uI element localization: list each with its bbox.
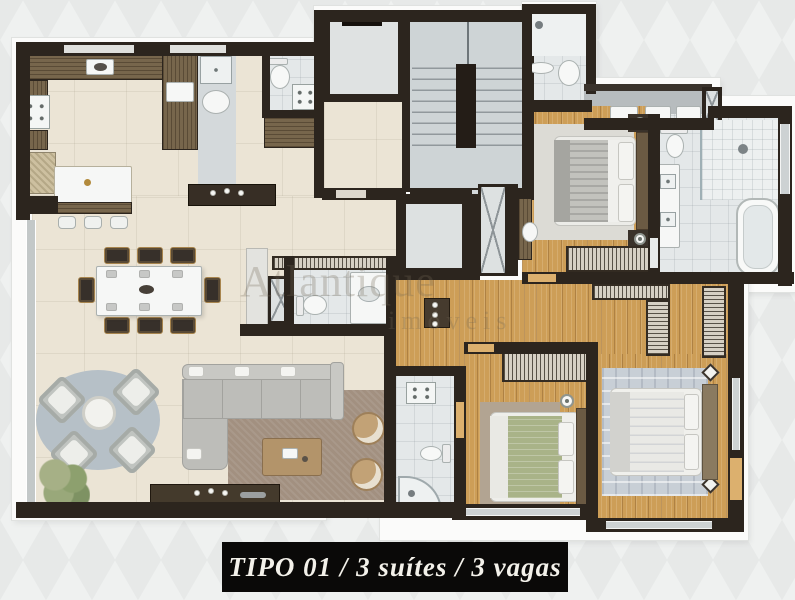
pillow <box>558 460 574 494</box>
wall <box>284 256 294 334</box>
powder-basin <box>358 286 380 302</box>
wall <box>454 366 466 516</box>
master-blanket-fold <box>554 140 570 222</box>
door-opening <box>468 344 494 352</box>
wall <box>262 50 270 116</box>
barrel-chair <box>352 412 385 445</box>
candle <box>222 490 228 496</box>
stair-divider <box>467 16 469 66</box>
sofa-seat <box>182 379 342 419</box>
bathtub <box>736 198 780 276</box>
decor-dot <box>210 190 216 196</box>
window <box>466 508 580 516</box>
vanity-sink <box>660 212 676 227</box>
lamp <box>634 233 646 245</box>
dining-chair <box>170 247 196 264</box>
candle <box>432 312 438 318</box>
island-wood-band <box>54 202 132 214</box>
pillow <box>558 422 574 456</box>
bar-stool <box>84 216 102 229</box>
dining-chair <box>137 247 163 264</box>
powder-toilet <box>303 295 327 315</box>
wall <box>402 14 410 192</box>
sofa-pillow <box>280 366 296 377</box>
wall <box>314 10 536 22</box>
pillow <box>684 394 699 430</box>
candle <box>208 488 214 494</box>
place-setting <box>106 303 117 311</box>
entry-door-opening <box>336 190 366 198</box>
window <box>170 45 226 53</box>
service-toilet <box>270 65 290 89</box>
kitchen-island <box>54 166 132 204</box>
suite2-headboard <box>702 384 718 480</box>
pillow <box>684 434 699 470</box>
wall <box>394 366 458 376</box>
coffee-table-book <box>282 448 298 459</box>
place-setting <box>139 303 150 311</box>
elevator2-door <box>462 204 472 268</box>
wall <box>522 4 532 108</box>
shower-enclosure <box>700 120 780 200</box>
decor-bowl <box>302 456 308 462</box>
sofa-chaise <box>182 418 228 470</box>
toilet <box>558 60 580 86</box>
candle <box>432 302 438 308</box>
sofa-armrest <box>330 362 344 420</box>
place-setting <box>139 270 150 278</box>
kitchen-sink-basin <box>94 63 107 71</box>
place-setting <box>172 303 183 311</box>
door-opening <box>528 274 556 282</box>
sofa-back <box>182 364 342 380</box>
decor-dot <box>238 190 244 196</box>
credenza <box>188 184 276 206</box>
tray <box>240 492 266 498</box>
elevator-cab <box>330 22 398 94</box>
wardrobe-rack <box>502 352 588 382</box>
dining-chair <box>170 317 196 334</box>
sofa-pillow <box>188 366 204 377</box>
candle <box>432 321 438 327</box>
wall <box>384 332 396 516</box>
sofa-pillow <box>186 448 202 460</box>
wall <box>314 12 324 198</box>
duct-shaft <box>478 184 508 276</box>
dining-chair <box>137 317 163 334</box>
closet-rack <box>646 300 670 356</box>
barrel-chair <box>350 458 383 491</box>
desk-chair <box>522 222 538 242</box>
suite2-blanket-fold <box>610 392 630 472</box>
dining-chair <box>204 277 221 303</box>
toilet-tank <box>442 444 451 463</box>
place-setting <box>106 270 117 278</box>
wall <box>586 4 596 94</box>
floor-plan-screenshot: Atlantique imóveis TIPO 01 / 3 suítes / … <box>0 0 795 600</box>
island-faucet <box>84 179 91 186</box>
lamp <box>560 394 574 408</box>
wall <box>16 42 30 220</box>
toilet <box>666 134 684 158</box>
shower-head <box>535 21 543 29</box>
service-sink <box>200 56 232 84</box>
window <box>780 124 790 194</box>
wall <box>506 184 518 276</box>
bar-stool <box>58 216 76 229</box>
laundry-tub <box>202 90 230 114</box>
wall <box>262 110 322 118</box>
tall-cabinet-door <box>246 248 268 336</box>
master-closet-rack <box>566 246 650 272</box>
washer <box>406 382 436 404</box>
closet-rack <box>702 286 726 358</box>
elevator2-cab <box>406 204 462 268</box>
stair-core <box>456 64 476 148</box>
wall <box>16 42 318 56</box>
place-setting <box>172 270 183 278</box>
pillow <box>618 142 634 180</box>
wall <box>522 100 592 112</box>
table-centerpiece <box>139 285 154 294</box>
closet-rack <box>592 284 670 300</box>
dining-chair <box>78 277 95 303</box>
toilet <box>420 446 442 461</box>
vanity-sink <box>660 174 676 189</box>
shower-head <box>408 490 415 497</box>
door-opening <box>650 238 658 268</box>
terrace-glass-wall <box>26 220 36 506</box>
door-opening <box>456 402 464 438</box>
decor-dot <box>224 188 230 194</box>
wall <box>16 196 58 214</box>
foyer-floor <box>324 100 402 192</box>
candle <box>194 490 200 496</box>
window <box>732 378 740 450</box>
suite3-blanket-fold <box>490 416 508 498</box>
dining-chair <box>104 247 130 264</box>
terrace-round-table <box>82 396 116 430</box>
window <box>64 45 134 53</box>
caption-bar: TIPO 01 / 3 suítes / 3 vagas <box>222 542 568 592</box>
bar-stool <box>110 216 128 229</box>
dining-chair <box>104 317 130 334</box>
window <box>606 521 712 529</box>
pillow <box>618 184 634 222</box>
wall <box>522 4 596 14</box>
caption-text: TIPO 01 / 3 suítes / 3 vagas <box>228 552 561 583</box>
wall <box>240 324 396 336</box>
door-opening <box>730 458 742 500</box>
balcony-rail <box>584 84 712 91</box>
sofa-pillow <box>234 366 250 377</box>
shower-drain <box>738 144 748 154</box>
wall-oven <box>166 82 194 102</box>
